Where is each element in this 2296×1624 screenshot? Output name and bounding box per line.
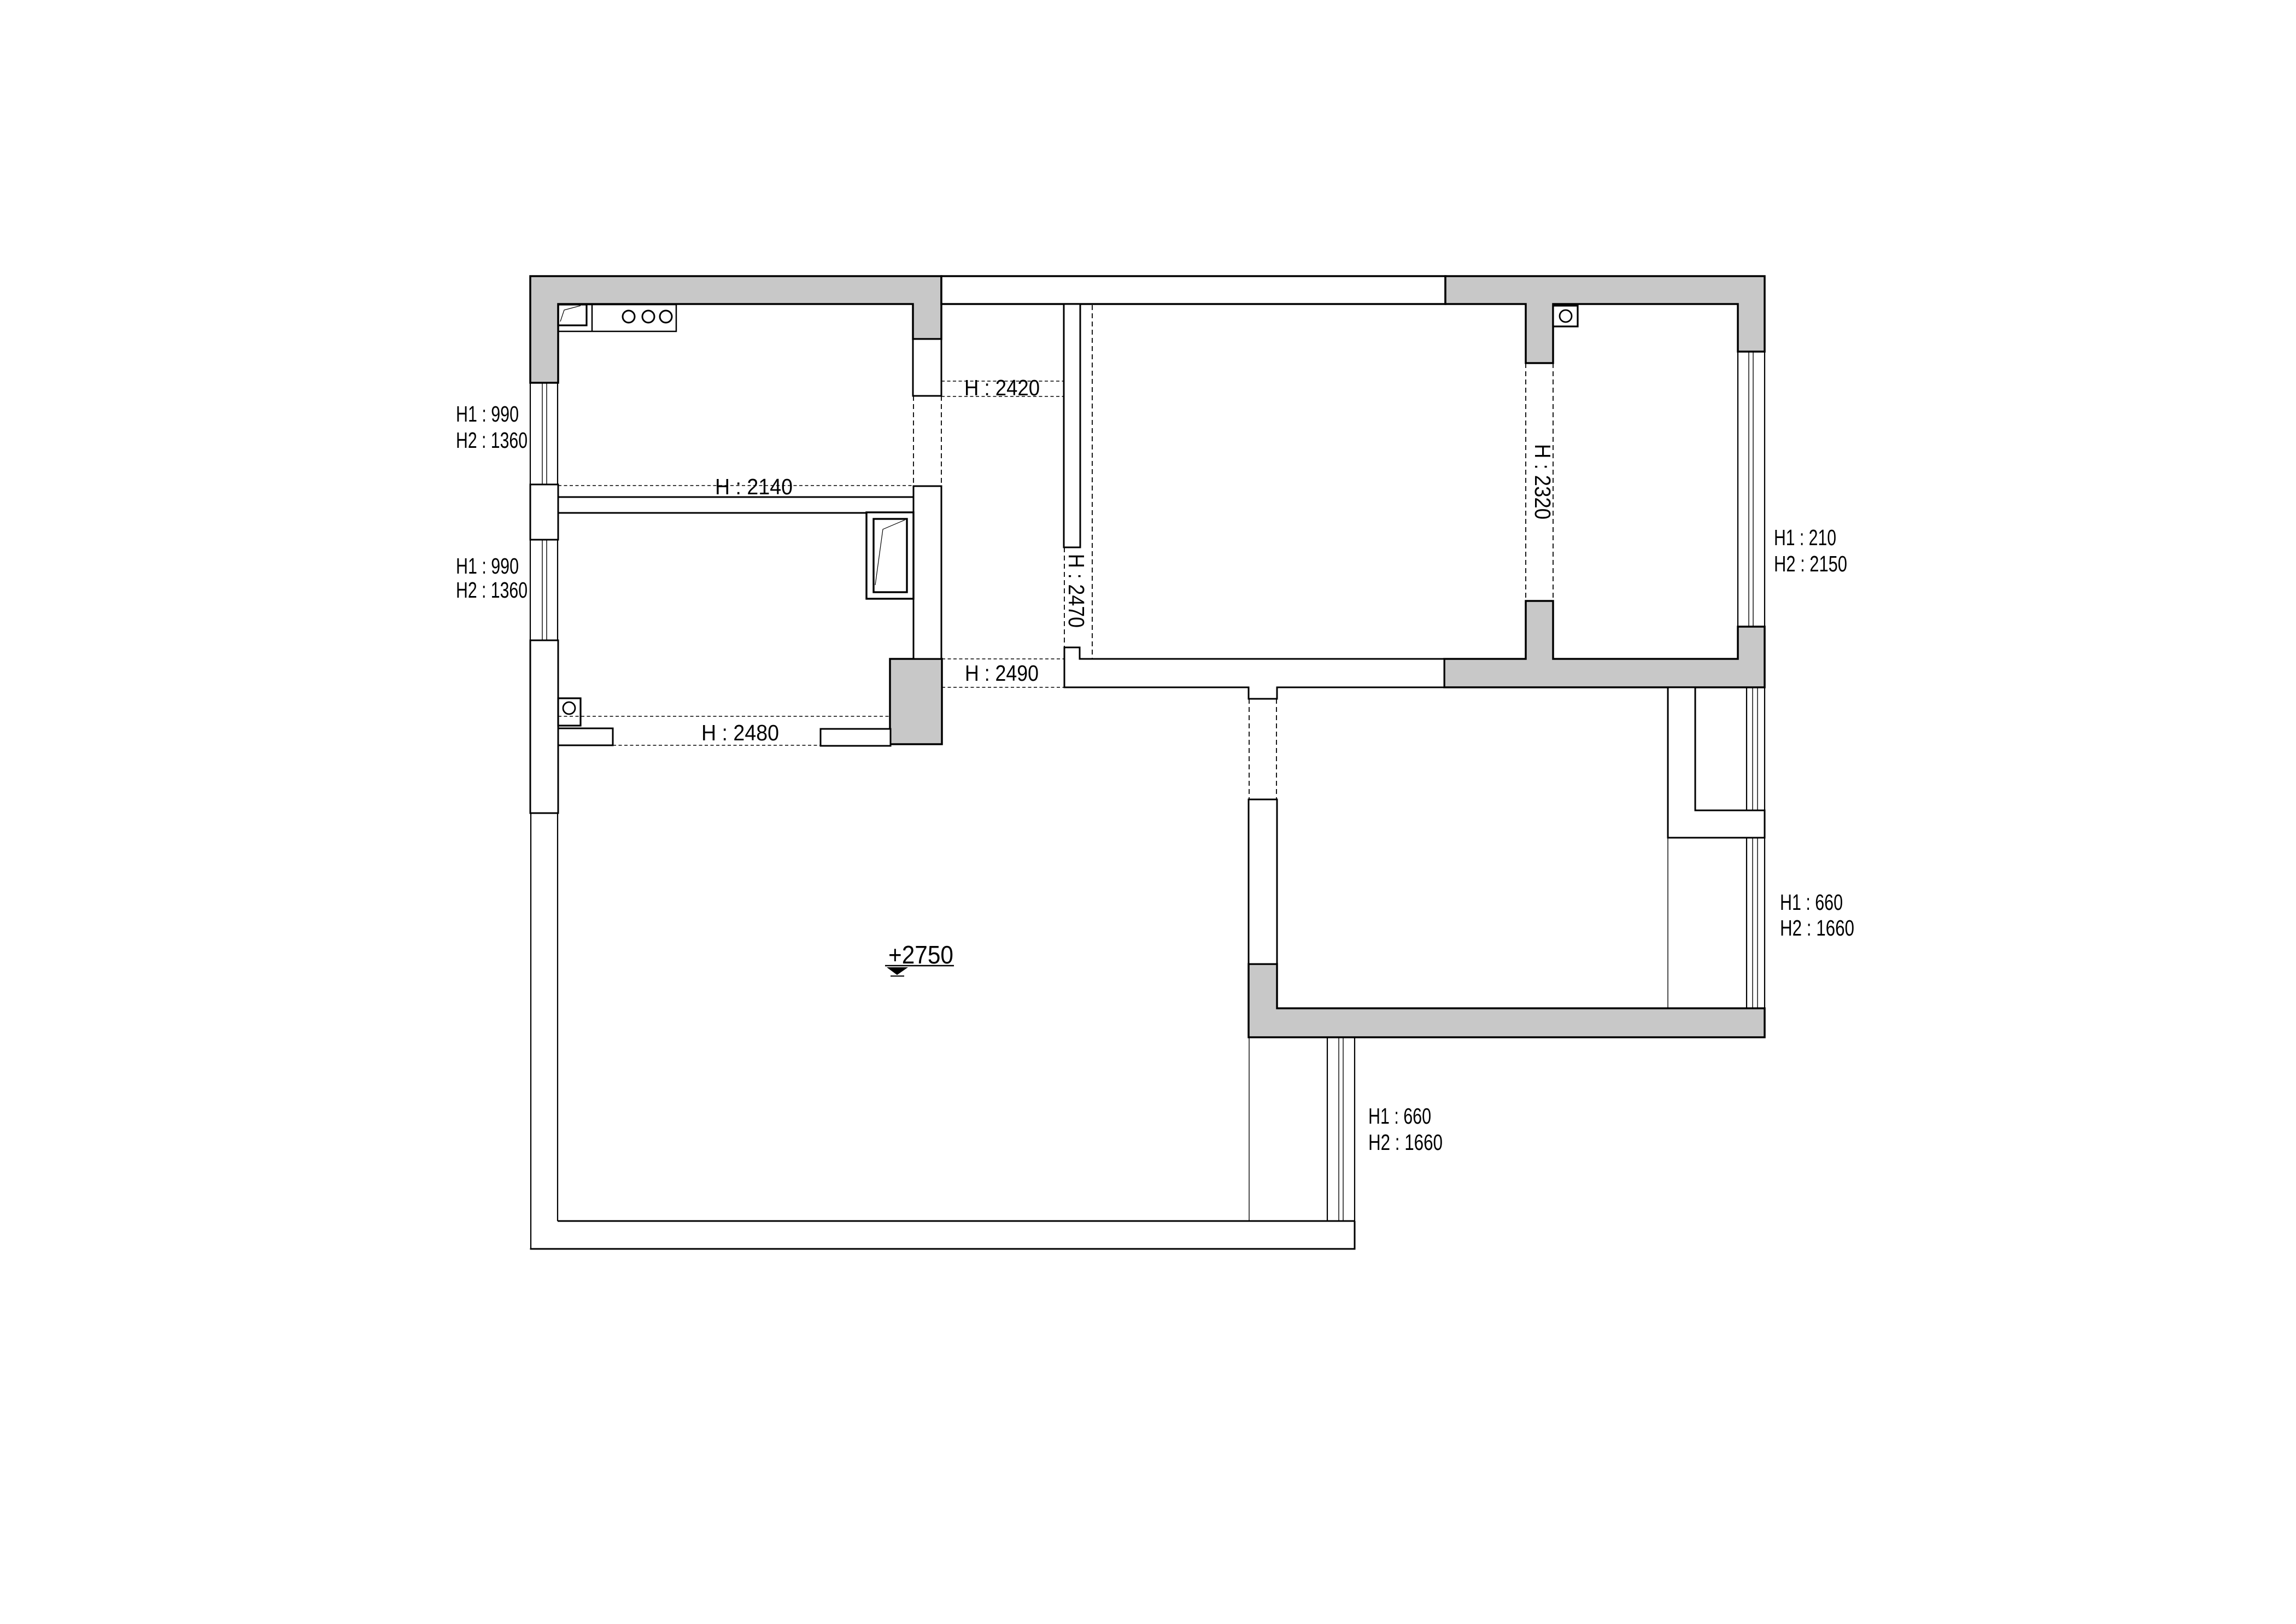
svg-text:+2750: +2750: [888, 940, 953, 969]
svg-text:H2 : 1360: H2 : 1360: [456, 577, 528, 603]
svg-text:H : 2480: H : 2480: [701, 720, 779, 745]
svg-text:H1 : 990: H1 : 990: [456, 401, 519, 427]
svg-text:H : 2140: H : 2140: [715, 474, 793, 499]
svg-text:H2 : 1660: H2 : 1660: [1368, 1130, 1443, 1155]
svg-text:H : 2490: H : 2490: [965, 661, 1039, 686]
svg-text:H2 : 2150: H2 : 2150: [1774, 551, 1847, 576]
svg-text:H1 : 210: H1 : 210: [1774, 525, 1836, 550]
svg-text:H2 : 1660: H2 : 1660: [1780, 915, 1854, 940]
svg-text:H : 2320: H : 2320: [1530, 444, 1555, 519]
svg-text:H1 : 660: H1 : 660: [1368, 1103, 1431, 1129]
svg-text:H1 : 660: H1 : 660: [1780, 890, 1843, 915]
svg-text:H : 2420: H : 2420: [964, 375, 1040, 400]
svg-text:H : 2470: H : 2470: [1064, 554, 1089, 628]
svg-text:H1 : 990: H1 : 990: [456, 553, 519, 579]
svg-text:H2 : 1360: H2 : 1360: [456, 428, 528, 453]
